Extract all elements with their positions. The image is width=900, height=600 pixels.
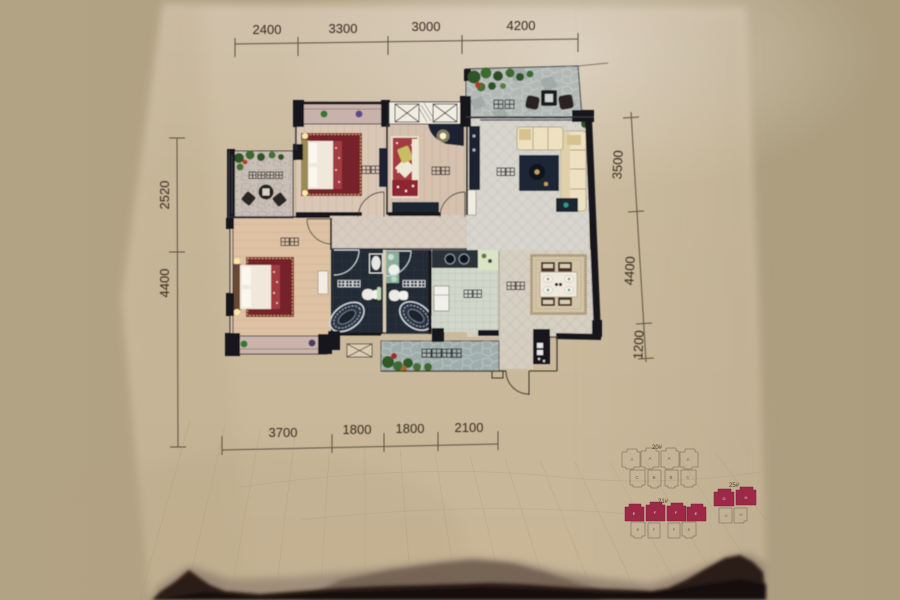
svg-text:H: H [745, 495, 748, 500]
svg-text:3500: 3500 [609, 150, 625, 180]
svg-text:4200: 4200 [507, 18, 536, 33]
svg-text:G: G [722, 496, 725, 501]
svg-text:3300: 3300 [329, 21, 358, 36]
svg-text:1800: 1800 [396, 421, 425, 436]
svg-text:4400: 4400 [621, 256, 637, 286]
svg-text:B: B [669, 475, 672, 480]
svg-text:E: E [633, 511, 636, 516]
svg-text:A: A [686, 457, 689, 462]
svg-text:G: G [724, 513, 727, 518]
svg-text:E: E [695, 511, 698, 516]
svg-text:A: A [667, 456, 670, 461]
svg-text:H: H [740, 512, 743, 517]
svg-text:3000: 3000 [412, 19, 441, 34]
svg-text:4400: 4400 [157, 269, 172, 298]
svg-text:A: A [648, 456, 651, 461]
svg-text:2100: 2100 [455, 420, 484, 435]
svg-text:3700: 3700 [269, 425, 298, 440]
svg-text:2520: 2520 [157, 181, 172, 210]
svg-text:1200: 1200 [630, 330, 646, 360]
svg-text:E: E [688, 527, 691, 532]
svg-text:E: E [637, 527, 640, 532]
svg-text:1800: 1800 [343, 422, 372, 437]
svg-text:B: B [652, 475, 655, 480]
svg-text:25#: 25# [729, 483, 740, 489]
svg-text:A: A [630, 457, 633, 462]
svg-text:2400: 2400 [253, 22, 282, 37]
